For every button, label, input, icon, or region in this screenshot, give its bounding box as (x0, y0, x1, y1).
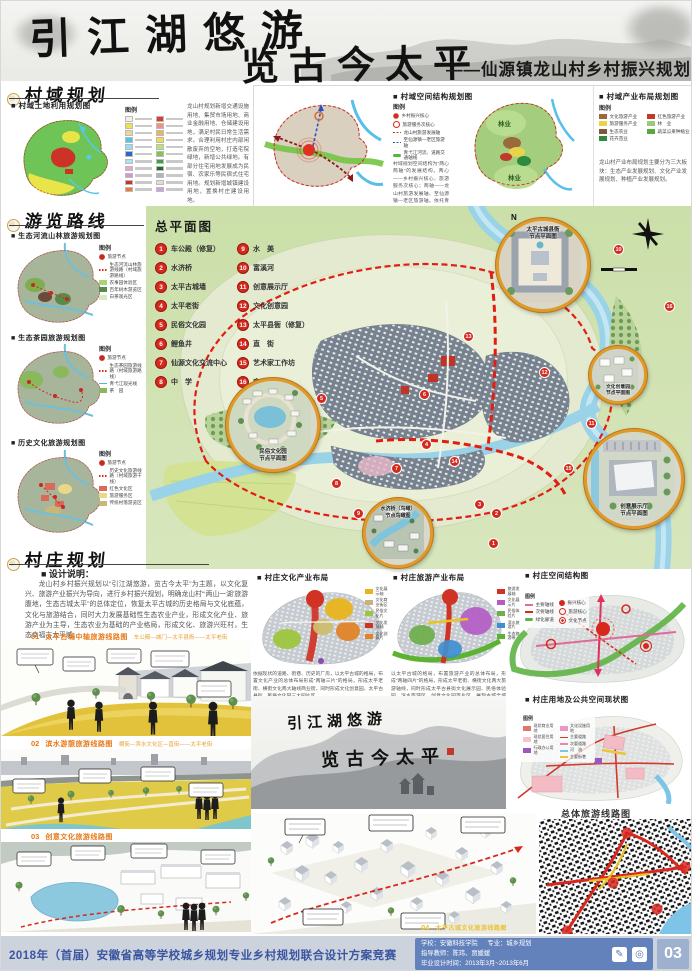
legend-color-swatch (125, 130, 133, 136)
legend-swatch (99, 383, 107, 385)
legend-swatch (647, 121, 655, 126)
legend-label: 民俗文化片 (376, 609, 390, 618)
legend-swatch-row (156, 187, 183, 193)
legend-color-swatch (125, 180, 133, 186)
legend-swatch (393, 154, 401, 157)
legend-swatch (559, 608, 566, 615)
map-marker: 12 (539, 367, 550, 378)
legend-label: 龙山村旅游发展轴 (404, 130, 441, 135)
map-marker: 3 (474, 499, 485, 510)
item-number-badge: 2 (155, 262, 167, 274)
inset-label: 民俗文化园节点平面图 (229, 449, 317, 463)
render-number: 03 (31, 832, 39, 841)
render2-header: 02 滨水游憩旅游线路图 横街—滨水文化区—直街——太平老街 (31, 739, 212, 749)
land-use-legend: 图例 (125, 105, 183, 194)
legend-row: 旅游节点 (99, 254, 145, 260)
legend-title: 图例 (99, 344, 145, 353)
master-plan-item: 7 仙源文化交流中心 (155, 357, 227, 369)
legend-label: 生态河流山林旅游线路（村域旅游路线） (110, 262, 146, 278)
legend-label: 河 流 (570, 748, 582, 753)
legend-swatch (560, 726, 568, 731)
legend-row: 文化展示轴 (365, 587, 389, 596)
legend-label: 旅游节点 (108, 460, 126, 465)
legend-swatch (523, 737, 531, 742)
legend-color-swatch (125, 187, 133, 193)
school-label: 学校：安徽科技学院 (421, 940, 478, 947)
legend-swatch (99, 295, 107, 300)
culture-title: ■ 村庄文化产业布局 (257, 572, 329, 583)
render-route: 车公殿—城门—太平县衙——太平老街 (134, 633, 228, 641)
legend-row: 旅游服务次核心 (393, 121, 449, 128)
legend-color-swatch (156, 180, 164, 186)
legend-color-swatch (125, 159, 133, 165)
map-marker: 8 (331, 478, 342, 489)
spatial-structure-map (257, 94, 387, 204)
legend-swatch (599, 136, 607, 141)
map-marker: 11 (586, 418, 597, 429)
land-use-note: 龙山村规划新增交通设施用地、集贸市场用地、商业金融用地、仓储建设用地，满足村民日… (187, 103, 249, 205)
item-number-badge: 5 (155, 319, 167, 331)
inset-label: 水济桥（鸟瞰）节点鸟瞰图 (366, 506, 430, 519)
legend-label: 旅游节点 (108, 254, 126, 259)
legend-color-swatch (156, 130, 164, 136)
legend-title: 图例 (525, 593, 554, 600)
legend-row: 历史文化旅游线路（村域旅游干线） (99, 468, 145, 484)
overall-route-map (539, 819, 691, 934)
legend-swatch (99, 388, 107, 393)
legend-color-swatch (156, 159, 164, 165)
seal-stamp (447, 748, 454, 755)
design-note-title: ■ 设计说明： (41, 567, 94, 580)
legend-swatch (497, 611, 505, 616)
legend-label: 主要轴线 (536, 602, 554, 607)
legend-label-placeholder (166, 118, 183, 121)
item-label: 中 学 (171, 377, 192, 387)
legend-swatch (393, 113, 399, 119)
legend-swatch (599, 114, 607, 119)
legend-label: 旅游服务产业 (610, 121, 638, 126)
render-route: 横街—滨水文化区—直街——太平老街 (119, 740, 213, 748)
forest-label: 林业 (508, 173, 522, 182)
item-number-badge: 7 (155, 357, 167, 369)
legend-swatch-row (156, 166, 183, 172)
legend-label: 文化旅游产业 (610, 114, 638, 119)
legend-row: 民俗文化片 (365, 609, 389, 618)
legend-color-swatch (156, 137, 164, 143)
legend-row: 青弋江河流、道路交通轴线 (393, 150, 449, 161)
legend-title: 图例 (523, 715, 593, 722)
section-title: 游览路线 (24, 207, 111, 232)
legend-row: 农事园体验区 (99, 280, 145, 285)
item-label: 太平古城墙 (171, 282, 206, 292)
legend-row: 主要街巷 (560, 755, 594, 760)
legend-label-placeholder (135, 118, 152, 121)
tourism-title: ■ 村庄旅游产业布局 (393, 572, 465, 583)
legend-swatch-row (125, 180, 152, 186)
legend-swatch (99, 370, 107, 372)
legend-color-swatch (125, 173, 133, 179)
legend-label-placeholder (166, 146, 183, 149)
tour1-map (5, 241, 100, 331)
legend-row: 白茶观光区 (99, 294, 145, 299)
master-plan-item: 11 创意展示厅 (237, 281, 309, 293)
legend-row: 主要轴线 (525, 602, 554, 607)
map-marker: 6 (419, 389, 430, 400)
major-label: 专业：城乡规划 (487, 940, 531, 947)
legend-swatch (99, 493, 107, 498)
legend-row: 次要轴线 (525, 609, 554, 614)
axonometric-village-view (251, 813, 536, 934)
master-plan-item: 13 太平县衙（修复） (237, 319, 309, 331)
legend-swatch-row (156, 144, 183, 150)
legend-label: 主要街巷 (570, 755, 586, 760)
legend-label: 旅游节点 (108, 355, 126, 360)
legend-row: 振兴核心 (559, 600, 587, 606)
ink-calligraphy-line2: 览古今太平 (321, 742, 447, 772)
legend-label: 振兴核心 (567, 600, 585, 605)
legend-label-placeholder (135, 146, 152, 149)
master-plan-item: 4 太平老街 (155, 300, 227, 312)
render3-scene (1, 842, 251, 932)
item-label: 车公殿（修复） (171, 244, 220, 254)
compass-badge-icon: ◎ (632, 947, 647, 962)
legend-label: 文化创意片 (376, 632, 390, 641)
legend-label-placeholder (135, 125, 152, 128)
legend-label: 传统村落游览区 (110, 500, 142, 505)
map-marker: 2 (491, 508, 502, 519)
item-label: 民俗文化园 (171, 320, 206, 330)
tour1-legend: 图例 旅游节点 生态河流山林旅游线路（村域旅游路线） 农事园体验区 (99, 243, 145, 302)
legend-row: 旅游服务区 (99, 493, 145, 498)
legend-swatch (393, 121, 400, 128)
structure-title: ■ 村庄空间结构图 (525, 570, 589, 581)
legend-label: 旅游核心 (568, 609, 586, 614)
render-number: 01 (31, 632, 39, 641)
legend-swatch-row (156, 130, 183, 136)
legend-row: 花卉苗业 (599, 136, 643, 141)
legend-row: 河 流 (560, 748, 594, 753)
legend-swatch (523, 748, 531, 753)
legend-swatch-row (156, 151, 183, 157)
legend-swatch-row (156, 159, 183, 165)
legend-row: 次要道路 (560, 742, 594, 747)
map-marker: 14 (449, 456, 460, 467)
legend-row: 蔬菜瓜果种植业 (647, 129, 691, 134)
legend-label-placeholder (166, 125, 183, 128)
legend-label: 百年树木游览区 (110, 287, 142, 292)
legend-label-placeholder (166, 181, 183, 184)
legend-row: 文化节点 (559, 617, 587, 624)
legend-row: 现状居住用地 (523, 735, 557, 744)
legend-swatch-row (156, 137, 183, 143)
item-number-badge: 8 (155, 376, 167, 388)
section-rule (9, 564, 209, 565)
legend-swatch (525, 604, 533, 606)
culture-legend: 文化展示轴 文化商业街区 民俗文化片 文化发展轴 文化创意片 (365, 587, 389, 643)
item-label: 鲤鱼井 (171, 339, 192, 349)
inset-folk-culture-park: 民俗文化园节点平面图 (226, 378, 320, 472)
legend-label-placeholder (135, 132, 152, 135)
master-plan-legend: 总平面图 1 车公殿（修复） 2 水济桥 3 太平古城 (155, 216, 335, 395)
legend-label: 现状商业用地 (534, 724, 557, 733)
legend-swatch (99, 287, 107, 292)
legend-swatch (525, 611, 533, 613)
legend-row: 红色文化区 (99, 486, 145, 491)
legend-color-swatch (125, 144, 133, 150)
legend-label: 主要道路 (570, 735, 586, 740)
legend-row: 文化发展轴 (365, 621, 389, 630)
legend-row: 旅游节点 (99, 460, 145, 466)
legend-row: 文化商业街区 (365, 598, 389, 607)
legend-row: 乡村振兴核心 (393, 113, 449, 119)
legend-label-placeholder (166, 139, 183, 142)
legend-swatch-row (125, 116, 152, 122)
render4-header: 04 太平古城文化旅游线路图 (421, 923, 507, 932)
legend-swatch (99, 280, 107, 285)
item-label: 水济桥 (171, 263, 192, 273)
legend-label: 文化商业街区 (376, 598, 390, 607)
inset-county-yamen: 太平古城县衙节点平面图 (496, 218, 590, 312)
master-plan-item: 9 水 美 (237, 243, 309, 255)
legend-row: 林 业 (647, 121, 691, 126)
render-title: 创意文化旅游线路图 (45, 832, 113, 842)
band1-divider (593, 86, 594, 207)
legend-swatch (497, 634, 505, 639)
legend-label: 生态茶园旅游线路（村域旅游路线） (110, 363, 146, 379)
legend-swatch (560, 737, 568, 739)
legend-swatch-row (125, 159, 152, 165)
inset-creative-park: 文化创意园节点平面图 (589, 346, 647, 404)
tour2-legend: 图例 旅游节点 生态茶园旅游线路（村域旅游路线） 青弋江观光线 (99, 344, 145, 395)
master-plan-title: 总平面图 (155, 216, 335, 235)
legend-row: 传统村落游览区 (99, 500, 145, 505)
item-label: 创意展示厅 (253, 282, 288, 292)
item-number-badge: 1 (155, 243, 167, 255)
legend-color-swatch (156, 166, 164, 172)
legend-row: 至仙源镇—老区旅游轴 (393, 137, 449, 148)
item-label: 直 街 (253, 339, 274, 349)
planning-poster: 引江湖悠游 览古今太平 ——仙源镇龙山村乡村振兴规划 村域规划 ■ 村域土地利用… (0, 0, 692, 971)
legend-label-placeholder (166, 160, 183, 163)
legend-row: 生态河流山林旅游线路（村域旅游路线） (99, 262, 145, 278)
item-label: 文化创意园 (253, 301, 288, 311)
legend-label: 红色文化区 (110, 486, 133, 491)
legend-color-swatch (156, 173, 164, 179)
legend-label: 林 业 (658, 121, 672, 126)
inset-bridge-aerial: 水济桥（鸟瞰）节点鸟瞰图 (363, 498, 433, 568)
legend-row: 绿化廊道 (525, 617, 554, 622)
item-number-badge: 9 (237, 243, 249, 255)
legend-swatch-row (125, 173, 152, 179)
credit-line-school: 学校：安徽科技学院 专业：城乡规划 (421, 939, 532, 949)
master-plan-item: 3 太平古城墙 (155, 281, 227, 293)
item-label: 艺术家工作坊 (253, 358, 295, 368)
tour3-legend: 图例 旅游节点 历史文化旅游线路（村域旅游干线） 红色文化区 (99, 449, 145, 508)
legend-label: 蔬菜瓜果种植业 (658, 129, 690, 134)
legend-swatch (647, 114, 655, 119)
render1-scene (1, 641, 251, 736)
legend-label: 现状居住用地 (534, 735, 557, 744)
legend-color-swatch (125, 123, 133, 129)
competition-title: 2018年（首届）安徽省高等学校城乡规划专业乡村规划联合设计方案竞赛 (9, 947, 409, 963)
item-label: 富溪河 (253, 263, 274, 273)
legend-label: 农事园体验区 (110, 280, 138, 285)
legend-swatch (99, 269, 107, 271)
legend-swatch-row (125, 151, 152, 157)
legend-swatch (559, 617, 566, 624)
legend-label: 生态农业 (610, 129, 628, 134)
legend-swatch-row (156, 123, 183, 129)
section-header-tour-routes: 游览路线 (7, 207, 109, 232)
master-plan-item: 2 水济桥 (155, 262, 227, 274)
legend-color-swatch (125, 116, 133, 122)
legend-label-placeholder (166, 174, 183, 177)
section-rule (9, 98, 159, 99)
header-banner: 引江湖悠游 览古今太平 ——仙源镇龙山村乡村振兴规划 (1, 1, 692, 81)
industry-map: 林业 林业 (456, 91, 576, 206)
legend-label: 文化展示轴 (376, 587, 390, 596)
item-number-badge: 13 (237, 319, 249, 331)
page-number: 03 (657, 939, 689, 969)
legend-row: 生态茶园旅游线路（村域旅游路线） (99, 363, 145, 379)
legend-row: 现状商业用地 (523, 724, 557, 733)
item-number-badge: 15 (237, 357, 249, 369)
legend-row: 文化设施用地 (560, 724, 594, 733)
credits-box: 学校：安徽科技学院 专业：城乡规划 指导教师：陈玮、贾媛媛 毕业设计时间：201… (415, 938, 653, 970)
legend-label: 文化设施用地 (570, 724, 593, 733)
legend-color-swatch (156, 116, 164, 122)
poster-subtitle: ——仙源镇龙山村乡村振兴规划 (399, 56, 691, 80)
legend-swatch (523, 726, 531, 731)
legend-color-swatch (156, 187, 164, 193)
legend-swatch-row (125, 123, 152, 129)
legend-title: 图例 (599, 103, 691, 112)
map-marker: 5 (316, 393, 327, 404)
legend-row: 百年树木游览区 (99, 287, 145, 292)
legend-row: 龙山村旅游发展轴 (393, 130, 449, 135)
master-plan-item: 14 直 街 (237, 338, 309, 350)
legend-swatch (497, 589, 505, 594)
legend-swatch (99, 254, 105, 260)
legend-label: 文化节点 (568, 618, 586, 623)
legend-label: 青弋江观光线 (110, 381, 138, 386)
legend-label-placeholder (135, 181, 152, 184)
legend-swatch (525, 618, 533, 621)
map-marker: 7 (391, 463, 402, 474)
legend-swatch (497, 600, 505, 605)
structure-legend: 图例 主要轴线 次要轴线 绿化廊道 (523, 591, 589, 628)
legend-label-placeholder (135, 139, 152, 142)
render3-header: 03 创意文化旅游线路图 (31, 832, 113, 842)
map-marker: 16 (664, 301, 675, 312)
legend-label-placeholder (135, 160, 152, 163)
industry-legend: 图例 文化旅游产业 旅游服务产业 生态农业 (599, 103, 691, 141)
legend-label: 青弋江河流、道路交通轴线 (404, 150, 450, 161)
legend-label: 红色旅游产业 (658, 114, 686, 119)
legend-swatch (99, 475, 107, 477)
legend-label: 花卉苗业 (610, 136, 628, 141)
legend-label: 旅游服务次核心 (403, 122, 435, 127)
legend-swatch (560, 750, 568, 752)
legend-swatch-row (156, 180, 183, 186)
master-plan-item: 10 富溪河 (237, 262, 309, 274)
credit-line-advisor: 指导教师：陈玮、贾媛媛 (421, 949, 532, 959)
legend-swatch-row (125, 166, 152, 172)
item-number-badge: 4 (155, 300, 167, 312)
land-use-legend-swatches (125, 116, 183, 194)
legend-label: 乡村振兴核心 (402, 113, 430, 118)
map-marker: 13 (463, 331, 474, 342)
legend-label: 历史文化旅游线路（村域旅游干线） (110, 468, 146, 484)
legend-label-placeholder (135, 167, 152, 170)
legend-label-placeholder (166, 132, 183, 135)
legend-row: 旅游服务产业 (599, 121, 643, 126)
legend-row: 文化旅游产业 (599, 114, 643, 119)
legend-row: 旅游节点 (99, 355, 145, 361)
industry-title: ■ 村域产业布局规划图 (599, 91, 679, 102)
master-plan-item: 5 民俗文化园 (155, 319, 227, 331)
legend-swatch (365, 589, 373, 594)
master-plan-item: 6 鲤鱼井 (155, 338, 227, 350)
legend-swatch (99, 355, 105, 361)
legend-swatch (559, 600, 565, 606)
item-label: 水 美 (253, 244, 274, 254)
legend-swatch-row (125, 137, 152, 143)
legend-swatch (365, 611, 373, 616)
inset-label: 文化创意园节点平面图 (592, 385, 644, 397)
status-legend: 图例 现状商业用地 现状居住用地 行政办公用地 (521, 713, 595, 762)
legend-swatch (497, 623, 505, 628)
legend-swatch-row (125, 187, 152, 193)
legend-swatch (99, 501, 107, 506)
legend-label-placeholder (135, 153, 152, 156)
legend-swatch (393, 142, 401, 144)
legend-swatch (393, 132, 401, 134)
legend-label-placeholder (166, 153, 183, 156)
legend-color-swatch (125, 151, 133, 157)
inset-exhibition-hall: 创意展示厅节点平面图 (584, 429, 684, 529)
legend-swatch (99, 486, 107, 491)
legend-label: 行政办公用地 (534, 746, 557, 755)
item-label: 太平老街 (171, 301, 199, 311)
legend-label: 绿化廊道 (536, 617, 554, 622)
master-plan-item: 15 艺术家工作坊 (237, 357, 309, 369)
master-items-right: 9 水 美 10 富溪河 11 创意展示厅 12 (237, 243, 309, 395)
map-marker: 9 (353, 508, 364, 519)
legend-swatch (560, 743, 568, 744)
map-marker: 15 (563, 463, 574, 474)
legend-label-placeholder (135, 188, 152, 191)
north-label: N (511, 213, 517, 222)
section-rule (9, 225, 144, 226)
item-label: 仙源文化交流中心 (171, 358, 227, 368)
legend-label: 至仙源镇—老区旅游轴 (404, 137, 450, 148)
legend-swatch (599, 129, 607, 134)
legend-swatch-row (156, 173, 183, 179)
master-items-left: 1 车公殿（修复） 2 水济桥 3 太平古城墙 4 (155, 243, 227, 395)
legend-label: 次要轴线 (536, 609, 554, 614)
legend-title: 图例 (99, 243, 145, 252)
footer-bar: 2018年（首届）安徽省高等学校城乡规划专业乡村规划联合设计方案竞赛 学校：安徽… (1, 936, 692, 971)
render-number: 02 (31, 739, 39, 748)
map-marker: 1 (488, 538, 499, 549)
map-marker: 4 (421, 439, 432, 450)
legend-color-swatch (125, 166, 133, 172)
legend-label: 白茶观光区 (110, 294, 133, 299)
tour2-map (5, 342, 100, 432)
master-plan-item: 1 车公殿（修复） (155, 243, 227, 255)
item-number-badge: 3 (155, 281, 167, 293)
